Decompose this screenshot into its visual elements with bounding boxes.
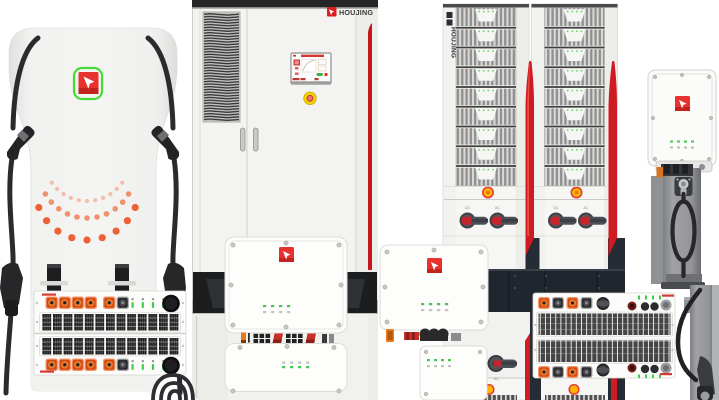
svg-text:DC: DC: [465, 206, 471, 210]
svg-text:AC: AC: [495, 206, 500, 210]
svg-text:HOUJING: HOUJING: [450, 27, 457, 58]
svg-text:AC: AC: [494, 377, 499, 381]
svg-text:DC: DC: [554, 206, 560, 210]
svg-text:AC: AC: [584, 206, 589, 210]
svg-text:HOUJING: HOUJING: [339, 8, 373, 17]
